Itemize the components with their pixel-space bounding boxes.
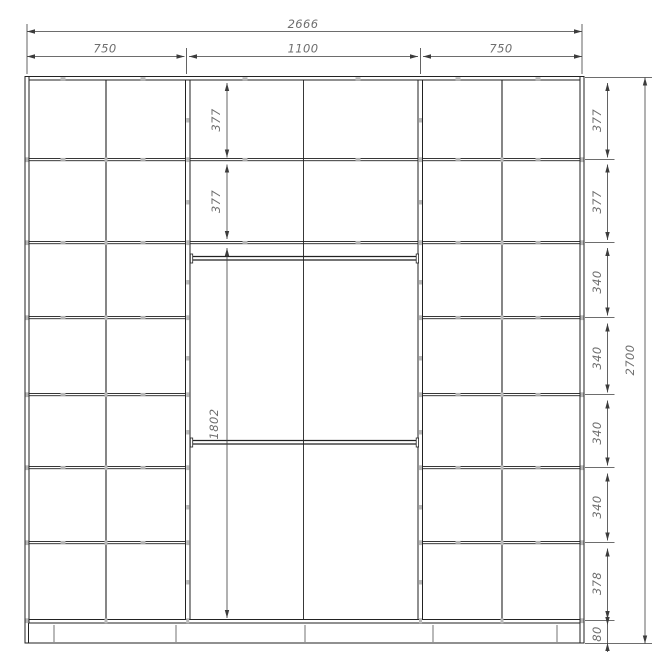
wardrobe-dimension-drawing: 2666 750 1100 750 377 377 1802 377 377 3…	[0, 0, 667, 667]
dim-top-section-right: 750	[489, 42, 512, 56]
dim-base-height: 80	[590, 626, 604, 641]
dimension-lines	[27, 24, 652, 652]
dim-total-height: 2700	[623, 345, 637, 376]
dim-total-width: 2666	[288, 17, 319, 31]
dim-right-row-1: 377	[590, 109, 604, 132]
dim-middle-shelf-1: 377	[209, 108, 223, 131]
dim-middle-hanging-space: 1802	[207, 409, 221, 440]
dim-right-row-2: 377	[590, 190, 604, 213]
dim-middle-shelf-2: 377	[209, 190, 223, 213]
dim-top-section-left: 750	[93, 42, 116, 56]
dim-right-row-6: 340	[590, 495, 604, 518]
dim-right-row-5: 340	[590, 421, 604, 444]
dim-right-row-7: 378	[590, 572, 604, 595]
structure-lines	[25, 77, 584, 644]
dim-right-row-3: 340	[590, 270, 604, 293]
dimension-labels: 2666 750 1100 750 377 377 1802 377 377 3…	[93, 17, 637, 642]
dim-top-section-middle: 1100	[288, 42, 319, 56]
dim-right-row-4: 340	[590, 346, 604, 369]
wardrobe-elevation-svg: 2666 750 1100 750 377 377 1802 377 377 3…	[0, 0, 667, 667]
